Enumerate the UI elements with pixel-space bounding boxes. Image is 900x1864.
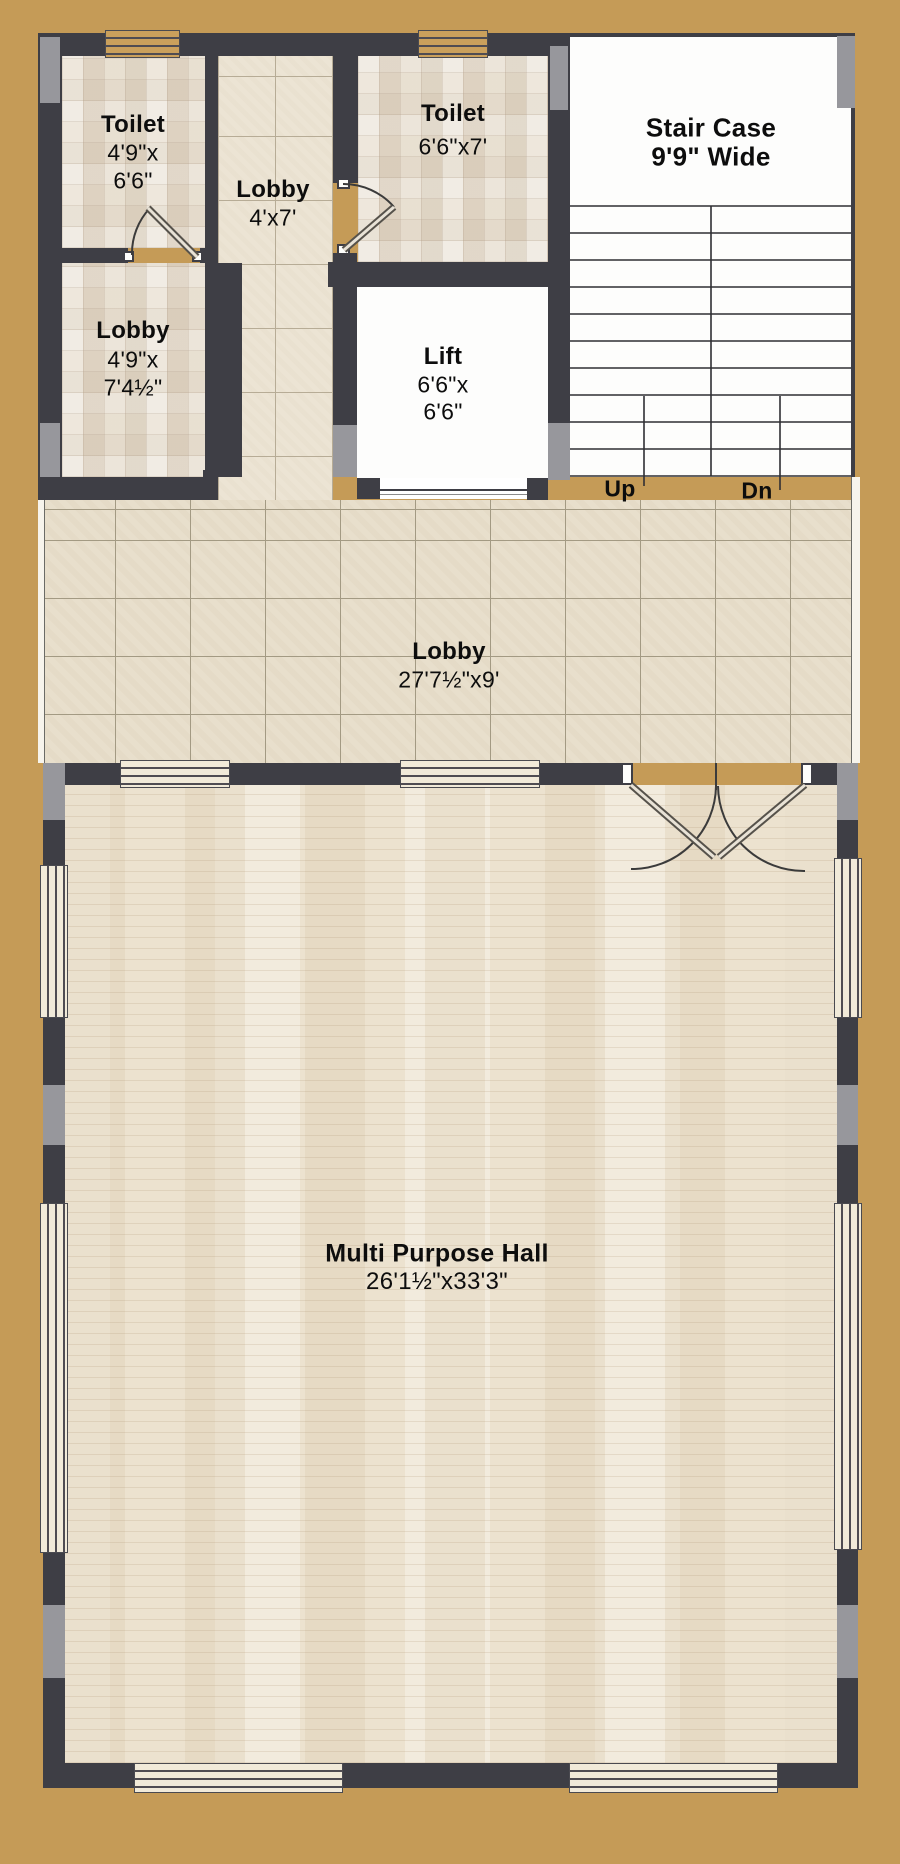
label-lobbyleft-dim2: 7'4½" [104, 375, 163, 402]
door-arc-toilet2 [343, 184, 394, 207]
label-toilet1-name: Toilet [101, 111, 165, 139]
label-stair-dim1: 9'9" Wide [651, 142, 770, 173]
label-hall-dim1: 26'1½"x33'3" [366, 1268, 508, 1296]
label-stair-up: Up [604, 476, 635, 503]
label-stair-name: Stair Case [646, 113, 776, 144]
floor-plan: Toilet 4'9"x 6'6" Lobby 4'x7' Toilet 6'6… [0, 0, 900, 1864]
label-lift-dim2: 6'6" [423, 399, 462, 426]
label-lift-name: Lift [424, 343, 463, 371]
floor-plan-page: { "colors": { "background_tan": "#c59b57… [0, 0, 900, 1864]
label-corridor-name: Lobby [236, 176, 310, 204]
label-corridor-dim1: 4'x7' [249, 205, 296, 232]
label-lobbyleft-dim1: 4'9"x [107, 347, 158, 374]
label-lift-dim1: 6'6"x [417, 372, 468, 399]
label-lobbyleft-name: Lobby [96, 317, 170, 345]
label-toilet2-dim1: 6'6"x7' [419, 134, 488, 161]
door-arc-toilet1 [132, 208, 150, 255]
label-toilet1-dim2: 6'6" [113, 168, 152, 195]
label-stair-down: Dn [741, 478, 772, 505]
label-toilet2-name: Toilet [421, 100, 485, 128]
stair-and-door-linework [0, 0, 900, 1864]
label-lobbymain-name: Lobby [412, 638, 486, 666]
label-lobbymain-dim1: 27'7½"x9' [398, 667, 500, 694]
label-toilet1-dim1: 4'9"x [107, 140, 158, 167]
label-hall-name: Multi Purpose Hall [325, 1240, 548, 1269]
